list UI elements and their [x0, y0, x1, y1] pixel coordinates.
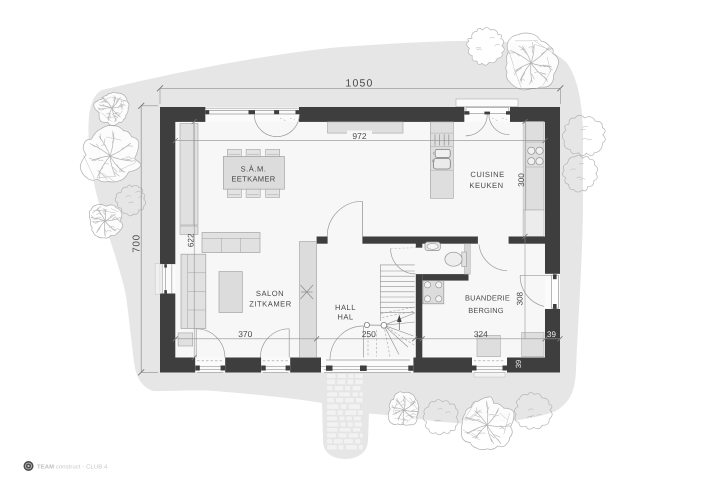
svg-text:S.À.M.: S.À.M. [241, 165, 267, 174]
svg-text:39: 39 [514, 360, 523, 368]
svg-text:HAL: HAL [337, 313, 353, 322]
svg-text:SALON: SALON [256, 289, 284, 298]
svg-text:EETKAMER: EETKAMER [231, 175, 275, 184]
svg-text:622: 622 [186, 233, 195, 247]
svg-text:ZITKAMER: ZITKAMER [249, 300, 291, 309]
svg-text:HALL: HALL [335, 303, 356, 312]
svg-text:700: 700 [132, 234, 143, 253]
svg-text:39: 39 [547, 330, 556, 339]
svg-text:BUANDERIE: BUANDERIE [465, 294, 510, 303]
svg-text:1050: 1050 [345, 77, 373, 89]
svg-text:250: 250 [362, 329, 376, 339]
svg-text:KEUKEN: KEUKEN [469, 181, 503, 190]
svg-text:324: 324 [474, 329, 488, 339]
svg-text:972: 972 [352, 131, 366, 141]
svg-text:CUISINE: CUISINE [470, 170, 504, 179]
svg-text:TEAM construct - CLUB 4: TEAM construct - CLUB 4 [37, 464, 108, 471]
svg-text:BERGING: BERGING [468, 306, 504, 315]
svg-text:308: 308 [515, 291, 524, 305]
svg-text:300: 300 [517, 173, 526, 187]
svg-text:370: 370 [238, 329, 252, 339]
